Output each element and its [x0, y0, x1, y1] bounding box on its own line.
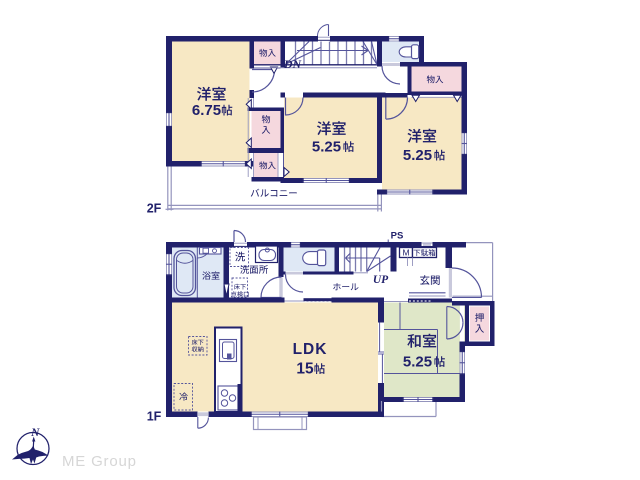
svg-text:DN: DN [283, 57, 303, 71]
svg-text:1F: 1F [147, 410, 162, 424]
svg-text:5.25: 5.25 [403, 147, 432, 164]
svg-text:15: 15 [296, 361, 314, 378]
svg-text:M: M [402, 248, 409, 258]
svg-text:PS: PS [391, 231, 404, 242]
svg-text:N: N [30, 427, 40, 439]
svg-text:5.25: 5.25 [403, 354, 432, 371]
svg-text:6.75: 6.75 [192, 102, 221, 119]
svg-text:ME Group: ME Group [62, 453, 137, 470]
svg-text:5.25: 5.25 [312, 139, 341, 156]
svg-text:UP: UP [373, 274, 389, 286]
svg-text:LDK: LDK [293, 341, 328, 358]
svg-text:2F: 2F [147, 202, 162, 216]
